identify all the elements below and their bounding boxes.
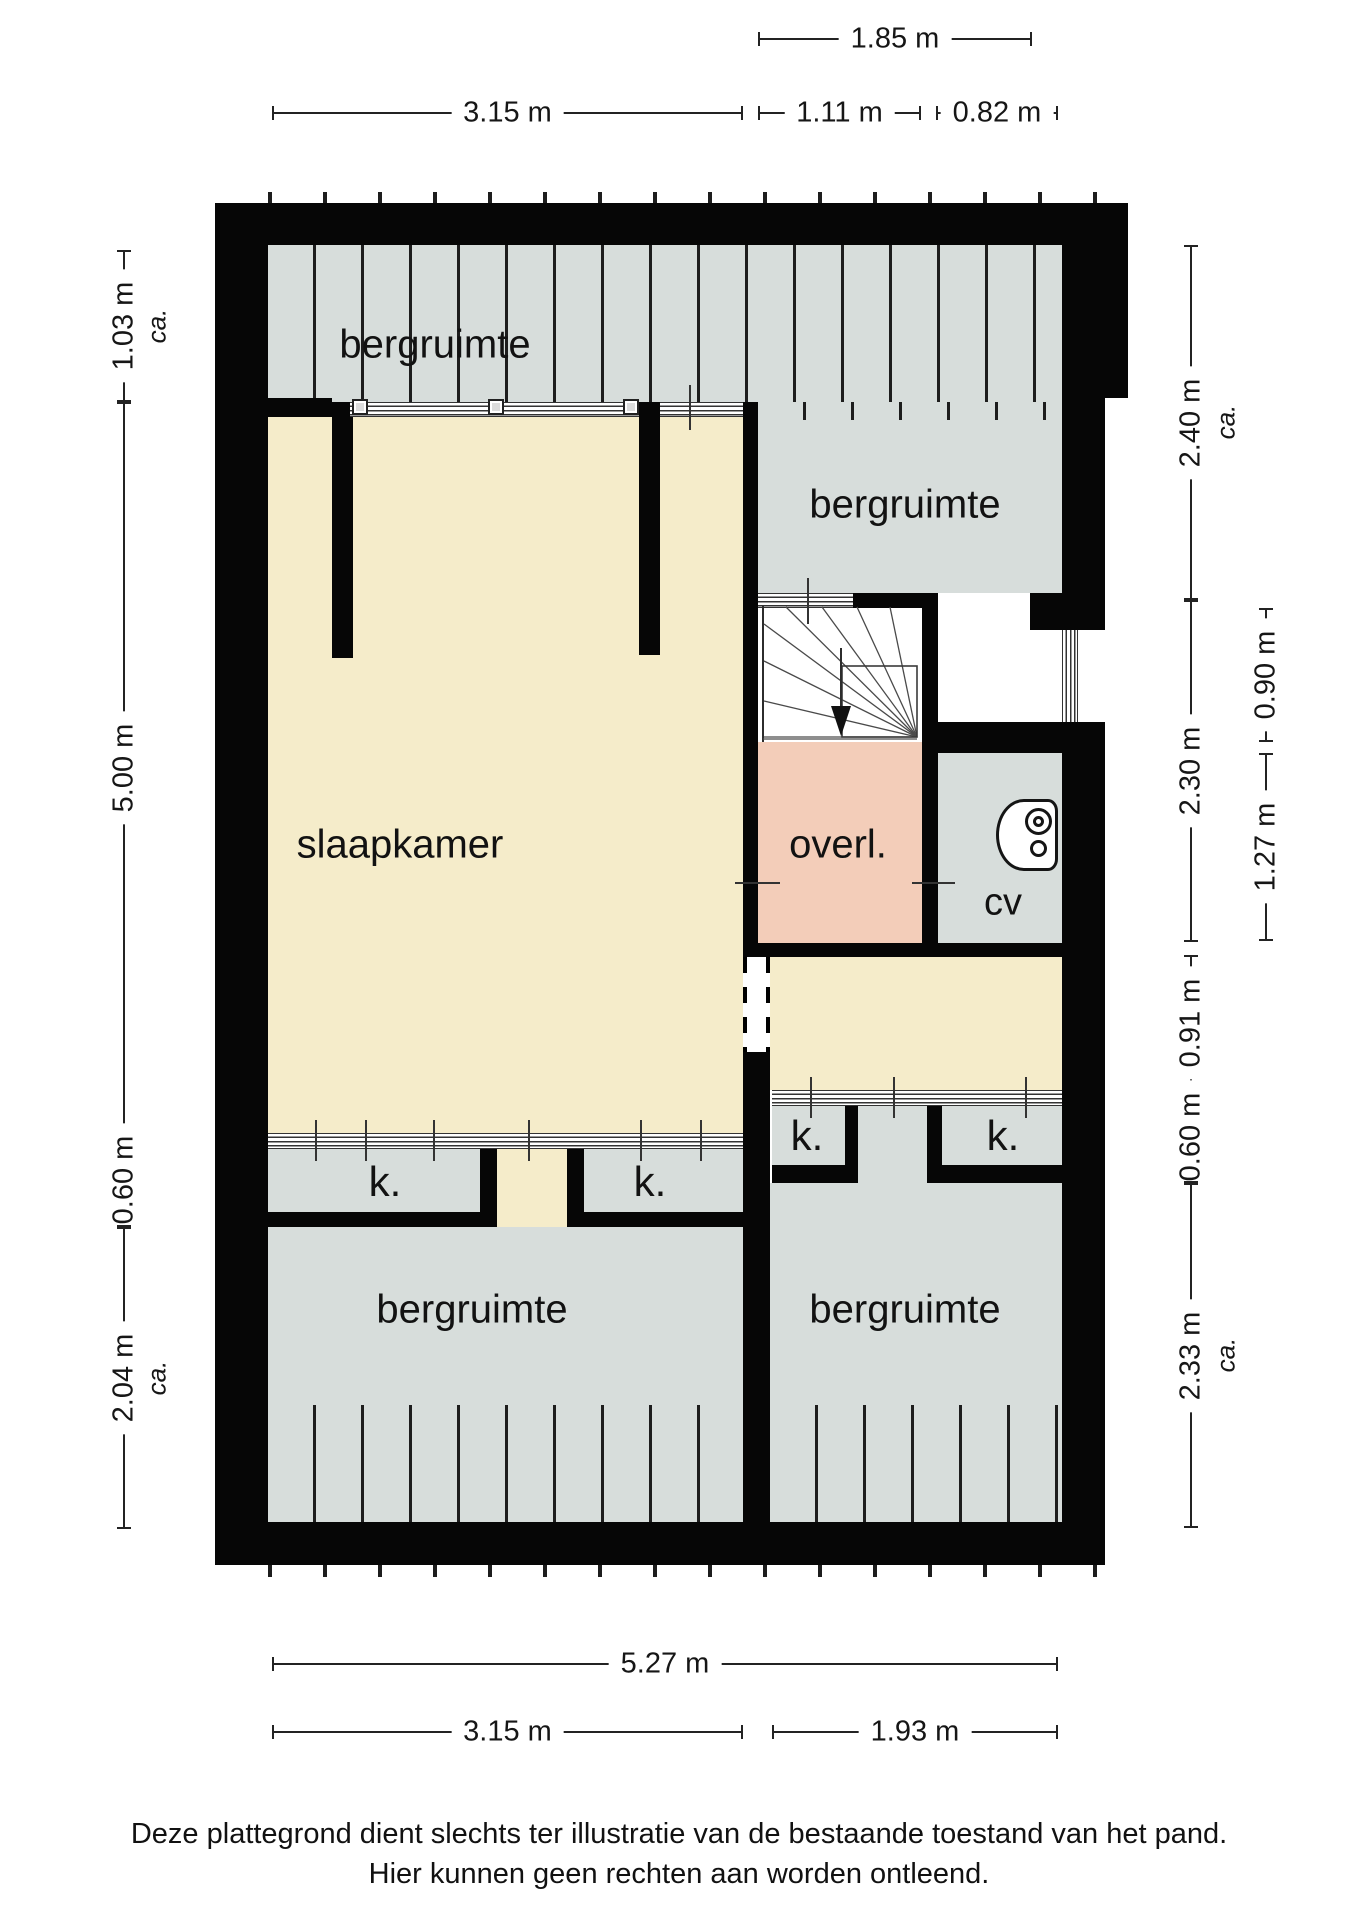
room-label-slaapkamer: slaapkamer xyxy=(297,823,504,868)
dimension-label: 1.93 m xyxy=(859,1716,972,1749)
dimension-bottom2-1: 3.15 m xyxy=(272,1731,743,1733)
room-label-kast-right-a: k. xyxy=(791,1112,824,1160)
room-label-bergruimte-bottom-left: bergruimte xyxy=(376,1288,567,1333)
dimension-label: 1.85 m xyxy=(839,23,952,56)
dimension-label: 1.11 m xyxy=(784,97,895,130)
roof-hatch-bottom xyxy=(217,1565,1103,1577)
dimension-right-outer-2: 1.27 m xyxy=(1265,753,1267,941)
door-tick xyxy=(735,882,780,884)
wall-top xyxy=(215,203,1105,245)
dimension-right-outer-1: 0.90 m xyxy=(1265,608,1267,742)
dimension-label: 2.40 m xyxy=(1175,366,1208,479)
hatch-bottom-left xyxy=(268,1405,743,1522)
dimension-approx: ca. xyxy=(1211,1338,1242,1373)
room-hall-right xyxy=(770,957,1062,1090)
window-symbol xyxy=(660,402,743,417)
wall-under-overloop-cv xyxy=(743,943,1062,957)
wall-right-tab xyxy=(1105,203,1128,398)
knee-wall-right xyxy=(772,1090,1062,1106)
window-post xyxy=(352,399,368,415)
dimension-right-3: 0.91 m xyxy=(1190,955,1192,1090)
wall-right-corner-block xyxy=(1030,593,1105,630)
wall-divider-lower xyxy=(743,1052,770,1565)
wall-kast-left-a-bottom xyxy=(268,1212,497,1227)
room-label-cv: cv xyxy=(984,882,1022,925)
door-tick xyxy=(912,882,955,884)
disclaimer-line-2: Hier kunnen geen rechten aan worden ontl… xyxy=(0,1858,1358,1891)
dimension-label: 2.30 m xyxy=(1175,715,1208,828)
dashed-opening-edge xyxy=(766,957,770,1052)
dimension-approx: ca. xyxy=(142,1361,173,1396)
wall-left xyxy=(215,203,268,1565)
dimension-top2-3: 0.82 m xyxy=(936,112,1058,114)
dimension-approx: ca. xyxy=(1211,405,1242,440)
floor-plan: bergruimte bergruimte slaapkamer overl. … xyxy=(0,0,1358,1920)
dimension-label: 3.15 m xyxy=(451,97,564,130)
room-bergruimte-top-right-hatch xyxy=(758,402,1062,420)
band-tick xyxy=(365,1120,367,1161)
wall-bottom xyxy=(215,1522,1105,1565)
band-tick xyxy=(689,385,691,430)
dimension-label: 2.04 m xyxy=(108,1322,141,1435)
dimension-label: 3.15 m xyxy=(451,1716,564,1749)
room-label-kast-left-b: k. xyxy=(634,1158,667,1206)
cv-boiler-icon xyxy=(996,799,1058,871)
dimension-label: 0.82 m xyxy=(941,97,1054,130)
room-label-kast-left-a: k. xyxy=(369,1158,402,1206)
room-label-overloop: overl. xyxy=(789,823,887,868)
wall-kast-right-b-bottom xyxy=(927,1165,1062,1183)
room-label-kast-right-b: k. xyxy=(987,1112,1020,1160)
dimension-label: 0.60 m xyxy=(1175,1080,1208,1193)
dimension-bottom-1: 5.27 m xyxy=(272,1663,1058,1665)
wall-divider-upper xyxy=(743,402,758,943)
hatch-bottom-right xyxy=(770,1405,1062,1522)
wall-right-lower xyxy=(1062,722,1105,1565)
band-tick xyxy=(700,1120,702,1161)
dimension-approx: ca. xyxy=(142,309,173,344)
dashed-opening-edge xyxy=(743,957,747,1052)
dimension-right-4: 0.60 m xyxy=(1190,1090,1192,1183)
dimension-left-3: 0.60 m xyxy=(123,1133,125,1227)
wall-kast-left-b-bottom xyxy=(567,1212,743,1227)
wall-kast-right-a-bottom xyxy=(772,1165,858,1183)
band-tick xyxy=(640,1120,642,1161)
dimension-left-2: 5.00 m xyxy=(123,402,125,1133)
wall-overloop-right xyxy=(922,608,938,943)
dimension-label: 1.27 m xyxy=(1250,791,1283,904)
dimension-top2-1: 3.15 m xyxy=(272,112,743,114)
wall-stub-slaapkamer-left xyxy=(332,402,353,658)
room-label-bergruimte-bottom-right: bergruimte xyxy=(809,1288,1000,1333)
window-symbol-right-wall xyxy=(1062,630,1078,722)
window-post xyxy=(488,399,504,415)
dimension-top2-2: 1.11 m xyxy=(758,112,921,114)
band-tick xyxy=(528,1120,530,1161)
dimension-right-5: 2.33 m xyxy=(1190,1183,1192,1528)
wall-right-upper xyxy=(1062,203,1105,600)
stairs xyxy=(758,606,922,742)
wall-window-left-piece xyxy=(268,398,332,417)
dimension-left-4: 2.04 m xyxy=(123,1227,125,1529)
dimension-top-1: 1.85 m xyxy=(758,38,1032,40)
dimension-bottom2-2: 1.93 m xyxy=(772,1731,1058,1733)
room-label-bergruimte-top-left: bergruimte xyxy=(339,323,530,368)
dimension-label: 5.27 m xyxy=(609,1648,722,1681)
dimension-right-2: 2.30 m xyxy=(1190,600,1192,942)
roof-hatch-top xyxy=(217,192,1103,203)
dimension-label: 5.00 m xyxy=(108,711,141,824)
wall-cv-top xyxy=(922,722,1062,753)
disclaimer-line-1: Deze plattegrond dient slechts ter illus… xyxy=(0,1818,1358,1851)
dimension-label: 0.90 m xyxy=(1250,619,1283,732)
dimension-label: 1.03 m xyxy=(108,270,141,383)
dimension-left-1: 1.03 m xyxy=(123,250,125,402)
room-label-bergruimte-top-right: bergruimte xyxy=(809,483,1000,528)
wall-stub-slaapkamer-right xyxy=(639,402,660,655)
band-tick xyxy=(433,1120,435,1161)
dimension-label: 2.33 m xyxy=(1175,1299,1208,1412)
knee-wall-left xyxy=(268,1133,743,1149)
band-tick xyxy=(893,1077,895,1118)
dimension-right-1: 2.40 m xyxy=(1190,245,1192,600)
band-tick xyxy=(1025,1077,1027,1118)
band-tick xyxy=(315,1120,317,1161)
dimension-label: 0.60 m xyxy=(108,1124,141,1237)
window-post xyxy=(623,399,639,415)
dimension-label: 0.91 m xyxy=(1175,966,1208,1079)
